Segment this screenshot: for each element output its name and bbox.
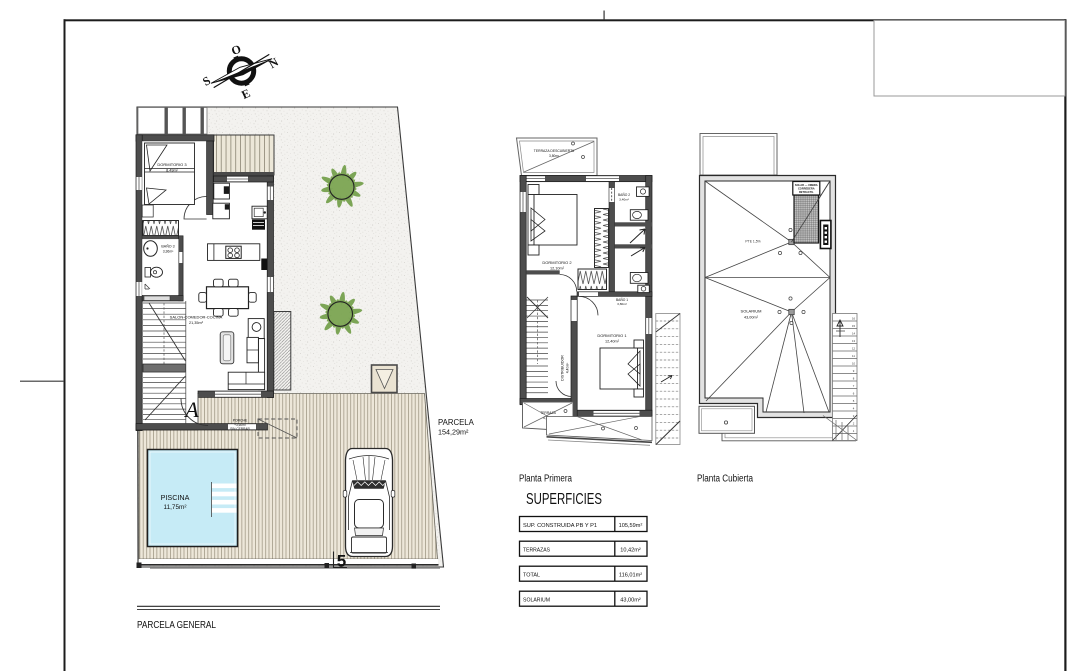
svg-text:154,29m²: 154,29m² bbox=[438, 428, 469, 437]
svg-text:14: 14 bbox=[852, 332, 856, 336]
svg-text:3,80m²: 3,80m² bbox=[549, 154, 559, 158]
svg-text:TERRAZAS: TERRAZAS bbox=[523, 548, 550, 554]
svg-text:43,00m²: 43,00m² bbox=[744, 316, 759, 320]
svg-text:SALON-COMEDOR-COCINA: SALON-COMEDOR-COCINA bbox=[170, 315, 223, 320]
svg-text:DORMITORIO 2: DORMITORIO 2 bbox=[542, 260, 572, 265]
svg-text:SUPERFICIES: SUPERFICIES bbox=[526, 491, 602, 508]
svg-text:DORMITORIO 1: DORMITORIO 1 bbox=[597, 333, 627, 338]
svg-text:16: 16 bbox=[852, 317, 856, 321]
svg-text:10,42m²: 10,42m² bbox=[620, 548, 641, 554]
svg-text:BAÑO 3: BAÑO 3 bbox=[161, 244, 174, 249]
svg-text:12,40m²: 12,40m² bbox=[605, 340, 620, 344]
svg-text:21,35m²: 21,35m² bbox=[189, 321, 204, 325]
svg-text:SOLARIUM: SOLARIUM bbox=[523, 598, 550, 604]
svg-text:PISCINA: PISCINA bbox=[161, 493, 190, 502]
svg-text:13: 13 bbox=[852, 339, 856, 343]
svg-text:12,10m²: 12,10m² bbox=[550, 267, 565, 271]
svg-text:SIN CERRAR: SIN CERRAR bbox=[230, 427, 250, 431]
svg-text:43,00m²: 43,00m² bbox=[620, 598, 641, 604]
svg-text:RETRACTIL: RETRACTIL bbox=[799, 190, 814, 194]
svg-text:11,75m²: 11,75m² bbox=[164, 504, 187, 511]
svg-text:DORMITORIO 3: DORMITORIO 3 bbox=[157, 162, 187, 167]
svg-text:8,49m²: 8,49m² bbox=[166, 169, 179, 173]
svg-text:Planta Cubierta: Planta Cubierta bbox=[697, 474, 753, 485]
svg-text:PTE 1,5%: PTE 1,5% bbox=[745, 240, 760, 244]
svg-text:Planta Primera: Planta Primera bbox=[519, 474, 572, 485]
svg-text:BAÑO 1: BAÑO 1 bbox=[616, 297, 628, 302]
svg-text:SOLARIUM: SOLARIUM bbox=[741, 309, 762, 314]
svg-text:5: 5 bbox=[337, 552, 346, 571]
svg-text:DISTRIBUIDOR: DISTRIBUIDOR bbox=[561, 355, 565, 381]
svg-text:PARCELA: PARCELA bbox=[438, 418, 475, 427]
svg-text:SOLAR — UMBRA: SOLAR — UMBRA bbox=[795, 183, 818, 187]
svg-text:4,40m²: 4,40m² bbox=[566, 362, 570, 373]
svg-text:CORREDERA: CORREDERA bbox=[798, 186, 815, 190]
svg-text:3,40m²: 3,40m² bbox=[619, 197, 629, 201]
svg-text:TERRAZA: TERRAZA bbox=[540, 411, 557, 415]
svg-text:A: A bbox=[183, 397, 199, 422]
svg-text:12: 12 bbox=[852, 347, 856, 351]
svg-text:15: 15 bbox=[852, 324, 856, 328]
svg-text:TOTAL: TOTAL bbox=[523, 573, 540, 579]
svg-text:SUP. CONSTRUIDA PB Y P1: SUP. CONSTRUIDA PB Y P1 bbox=[523, 523, 597, 529]
svg-text:11: 11 bbox=[852, 354, 855, 358]
svg-text:PARCELA GENERAL: PARCELA GENERAL bbox=[137, 619, 216, 631]
svg-text:10: 10 bbox=[852, 362, 856, 366]
svg-text:116,01m²: 116,01m² bbox=[619, 573, 642, 579]
svg-text:BAÑO 2: BAÑO 2 bbox=[618, 192, 630, 197]
svg-text:TERRAZA DESCUBIERTA: TERRAZA DESCUBIERTA bbox=[534, 149, 575, 153]
svg-text:3,80m²: 3,80m² bbox=[617, 302, 627, 306]
svg-text:3,36m²: 3,36m² bbox=[163, 250, 174, 254]
svg-text:105,59m²: 105,59m² bbox=[619, 523, 643, 529]
